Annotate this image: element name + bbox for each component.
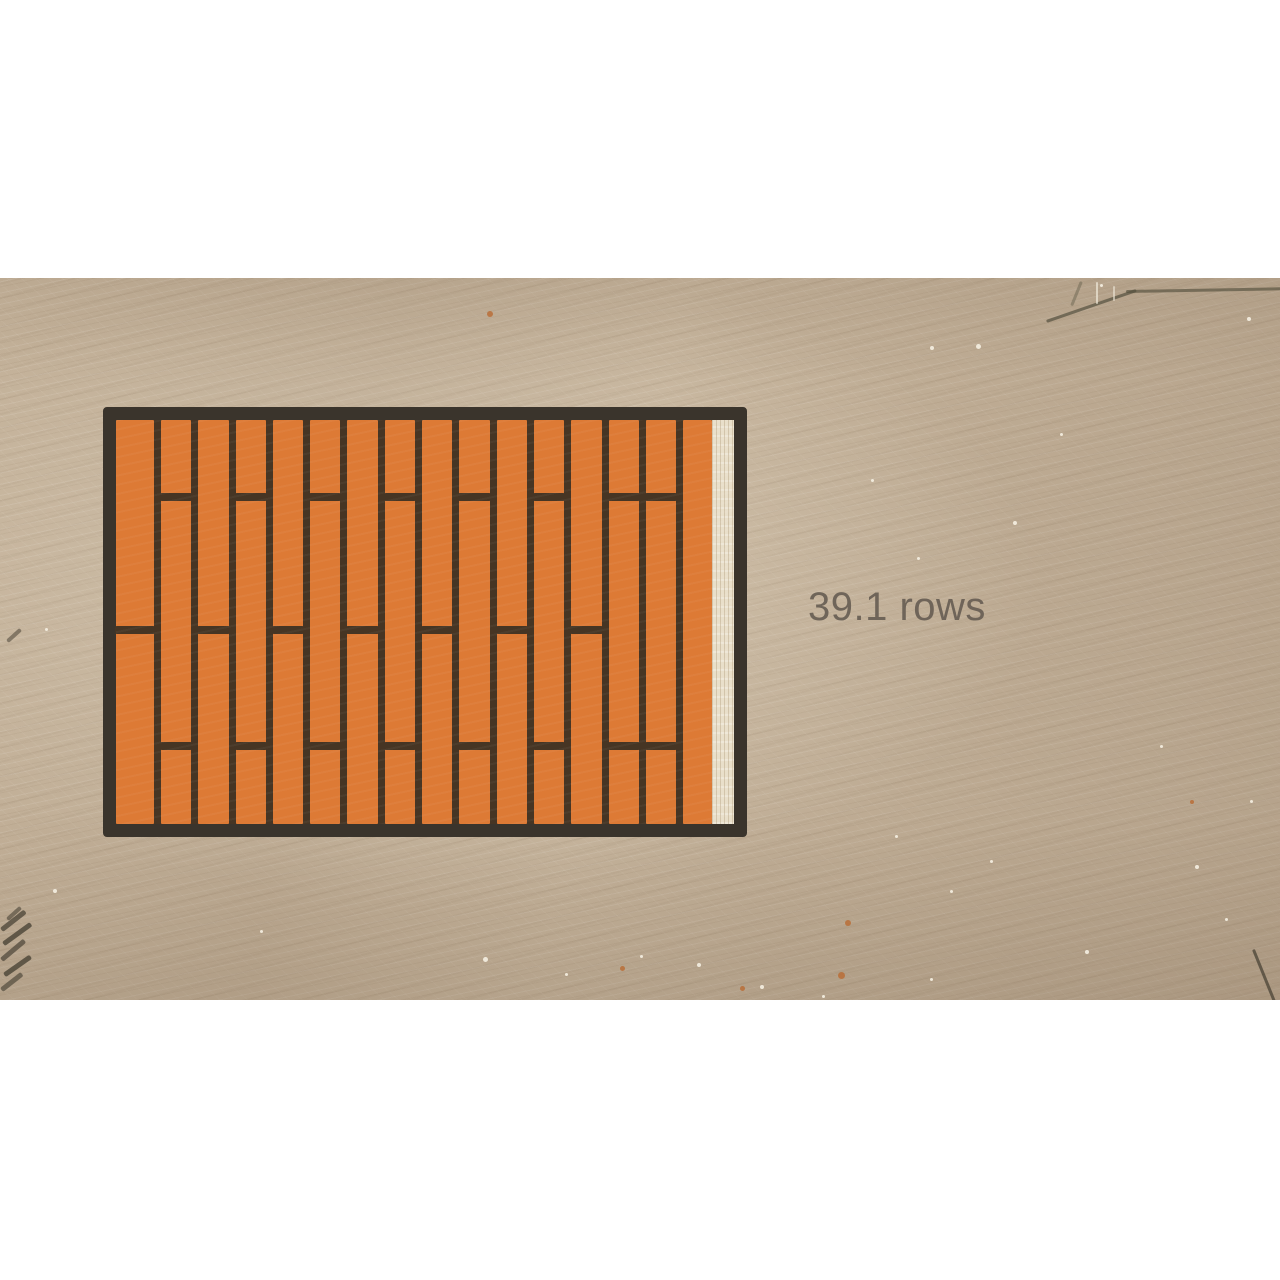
paint-speckle: [640, 955, 643, 958]
paint-speckle: [565, 973, 568, 976]
plank-joint: [533, 742, 565, 750]
rust-speckle: [845, 920, 851, 926]
plank-column: [161, 420, 191, 824]
plank-joint: [309, 493, 341, 501]
paint-speckle: [1247, 317, 1251, 321]
plank-joint: [115, 626, 155, 634]
pencil-mark: [1070, 281, 1083, 306]
plank-column: [459, 420, 489, 824]
pencil-mark: [6, 628, 22, 643]
plank-joint: [272, 626, 304, 634]
rust-speckle: [838, 972, 845, 979]
plank-joint: [496, 626, 528, 634]
paint-speckle: [1060, 433, 1063, 436]
plank-column: [347, 420, 377, 824]
plank-joint: [570, 626, 602, 634]
rust-speckle: [620, 966, 625, 971]
plank-column: [236, 420, 266, 824]
paint-speckle: [697, 963, 701, 967]
paint-speckle: [45, 628, 48, 631]
paint-speckle: [260, 930, 263, 933]
plank-column: [198, 420, 228, 824]
rust-speckle: [740, 986, 745, 991]
plank-column: [385, 420, 415, 824]
video-frame: 39.1 rows: [0, 278, 1280, 1000]
paint-speckle: [930, 978, 933, 981]
paint-speckle: [822, 995, 825, 998]
plank-joint: [645, 742, 677, 750]
plank-column: [683, 420, 712, 824]
paint-speckle: [1160, 745, 1163, 748]
plank-column: [422, 420, 452, 824]
paint-speckle: [1250, 800, 1253, 803]
paint-speckle: [950, 890, 953, 893]
paint-speckle: [1225, 918, 1228, 921]
plank-column: [497, 420, 527, 824]
paint-speckle: [1085, 950, 1089, 954]
paint-speckle: [930, 346, 934, 350]
paint-speckle: [53, 889, 57, 893]
plank-joint: [235, 742, 267, 750]
unfinished-gap-strip: [712, 420, 734, 824]
plank-joint: [608, 493, 640, 501]
plank-joint: [346, 626, 378, 634]
paint-speckle: [1195, 865, 1199, 869]
letterbox-bottom: [0, 1000, 1280, 1280]
paint-speckle: [483, 957, 488, 962]
paint-speckle: [976, 344, 981, 349]
paint-speckle: [760, 985, 764, 989]
pencil-mark: [1113, 286, 1115, 301]
plank-joint: [421, 626, 453, 634]
plank-joint: [384, 742, 416, 750]
plank-column: [310, 420, 340, 824]
plank-grid: [116, 420, 712, 824]
plank-joint: [160, 742, 192, 750]
plank-joint: [309, 742, 341, 750]
paint-speckle: [895, 835, 898, 838]
rust-speckle: [1190, 800, 1194, 804]
letterbox-top: [0, 0, 1280, 278]
rust-speckle: [487, 311, 493, 317]
plank-joint: [645, 493, 677, 501]
plank-column: [273, 420, 303, 824]
pencil-mark: [1046, 289, 1137, 323]
paint-speckle: [871, 479, 874, 482]
plank-joint: [458, 742, 490, 750]
plank-joint: [235, 493, 267, 501]
plank-joint: [608, 742, 640, 750]
floor-diagram: [103, 407, 747, 837]
pencil-mark: [1126, 287, 1280, 293]
plank-joint: [533, 493, 565, 501]
pencil-mark: [1096, 282, 1098, 304]
video-page: 39.1 rows: [0, 0, 1280, 1280]
plank-joint: [458, 493, 490, 501]
plank-joint: [160, 493, 192, 501]
pencil-mark: [1252, 949, 1277, 1000]
plank-joint: [197, 626, 229, 634]
paint-speckle: [990, 860, 993, 863]
plank-column: [571, 420, 601, 824]
rows-count-label: 39.1 rows: [808, 587, 986, 627]
paint-speckle: [1013, 521, 1017, 525]
plank-column: [609, 420, 639, 824]
paint-speckle: [917, 557, 920, 560]
plank-joint: [384, 493, 416, 501]
plank-column: [534, 420, 564, 824]
plank-column: [646, 420, 676, 824]
paint-speckle: [1100, 284, 1103, 287]
plank-column: [116, 420, 154, 824]
